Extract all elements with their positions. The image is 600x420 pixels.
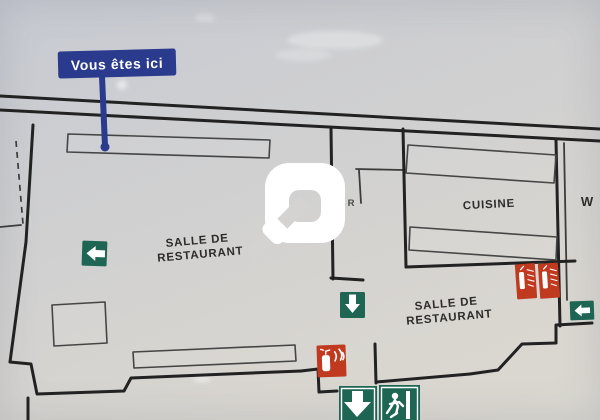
exit-arrow-left-small-icon: [570, 301, 595, 321]
pointer-line: [102, 76, 105, 146]
salle-restaurant-1-label: SALLE DE RESTAURANT: [156, 231, 244, 264]
fire-extinguisher-icon: [316, 344, 346, 377]
cuisine-label: CUISINE: [463, 198, 516, 213]
exit-arrow-left-icon: [82, 241, 108, 267]
partial-r-label: R: [348, 198, 355, 209]
evacuation-plan-photo: SALLE DE RESTAURANT CUISINE SALLE DE RES…: [0, 0, 600, 420]
extinguisher-wall-sign-pair-icon: [515, 262, 560, 301]
partial-w-label: W: [581, 194, 594, 209]
floor-plan: SALLE DE RESTAURANT CUISINE SALLE DE RES…: [0, 0, 600, 420]
emergency-exit-icon: [339, 385, 420, 420]
watermark-logo-icon: [250, 163, 345, 256]
you-are-here-label: Vous êtes ici: [71, 55, 164, 73]
exit-arrow-down-icon: [340, 292, 365, 318]
room-labels: SALLE DE RESTAURANT CUISINE SALLE DE RES…: [156, 194, 594, 328]
salle-restaurant-2-label: SALLE DE RESTAURANT: [405, 294, 493, 327]
